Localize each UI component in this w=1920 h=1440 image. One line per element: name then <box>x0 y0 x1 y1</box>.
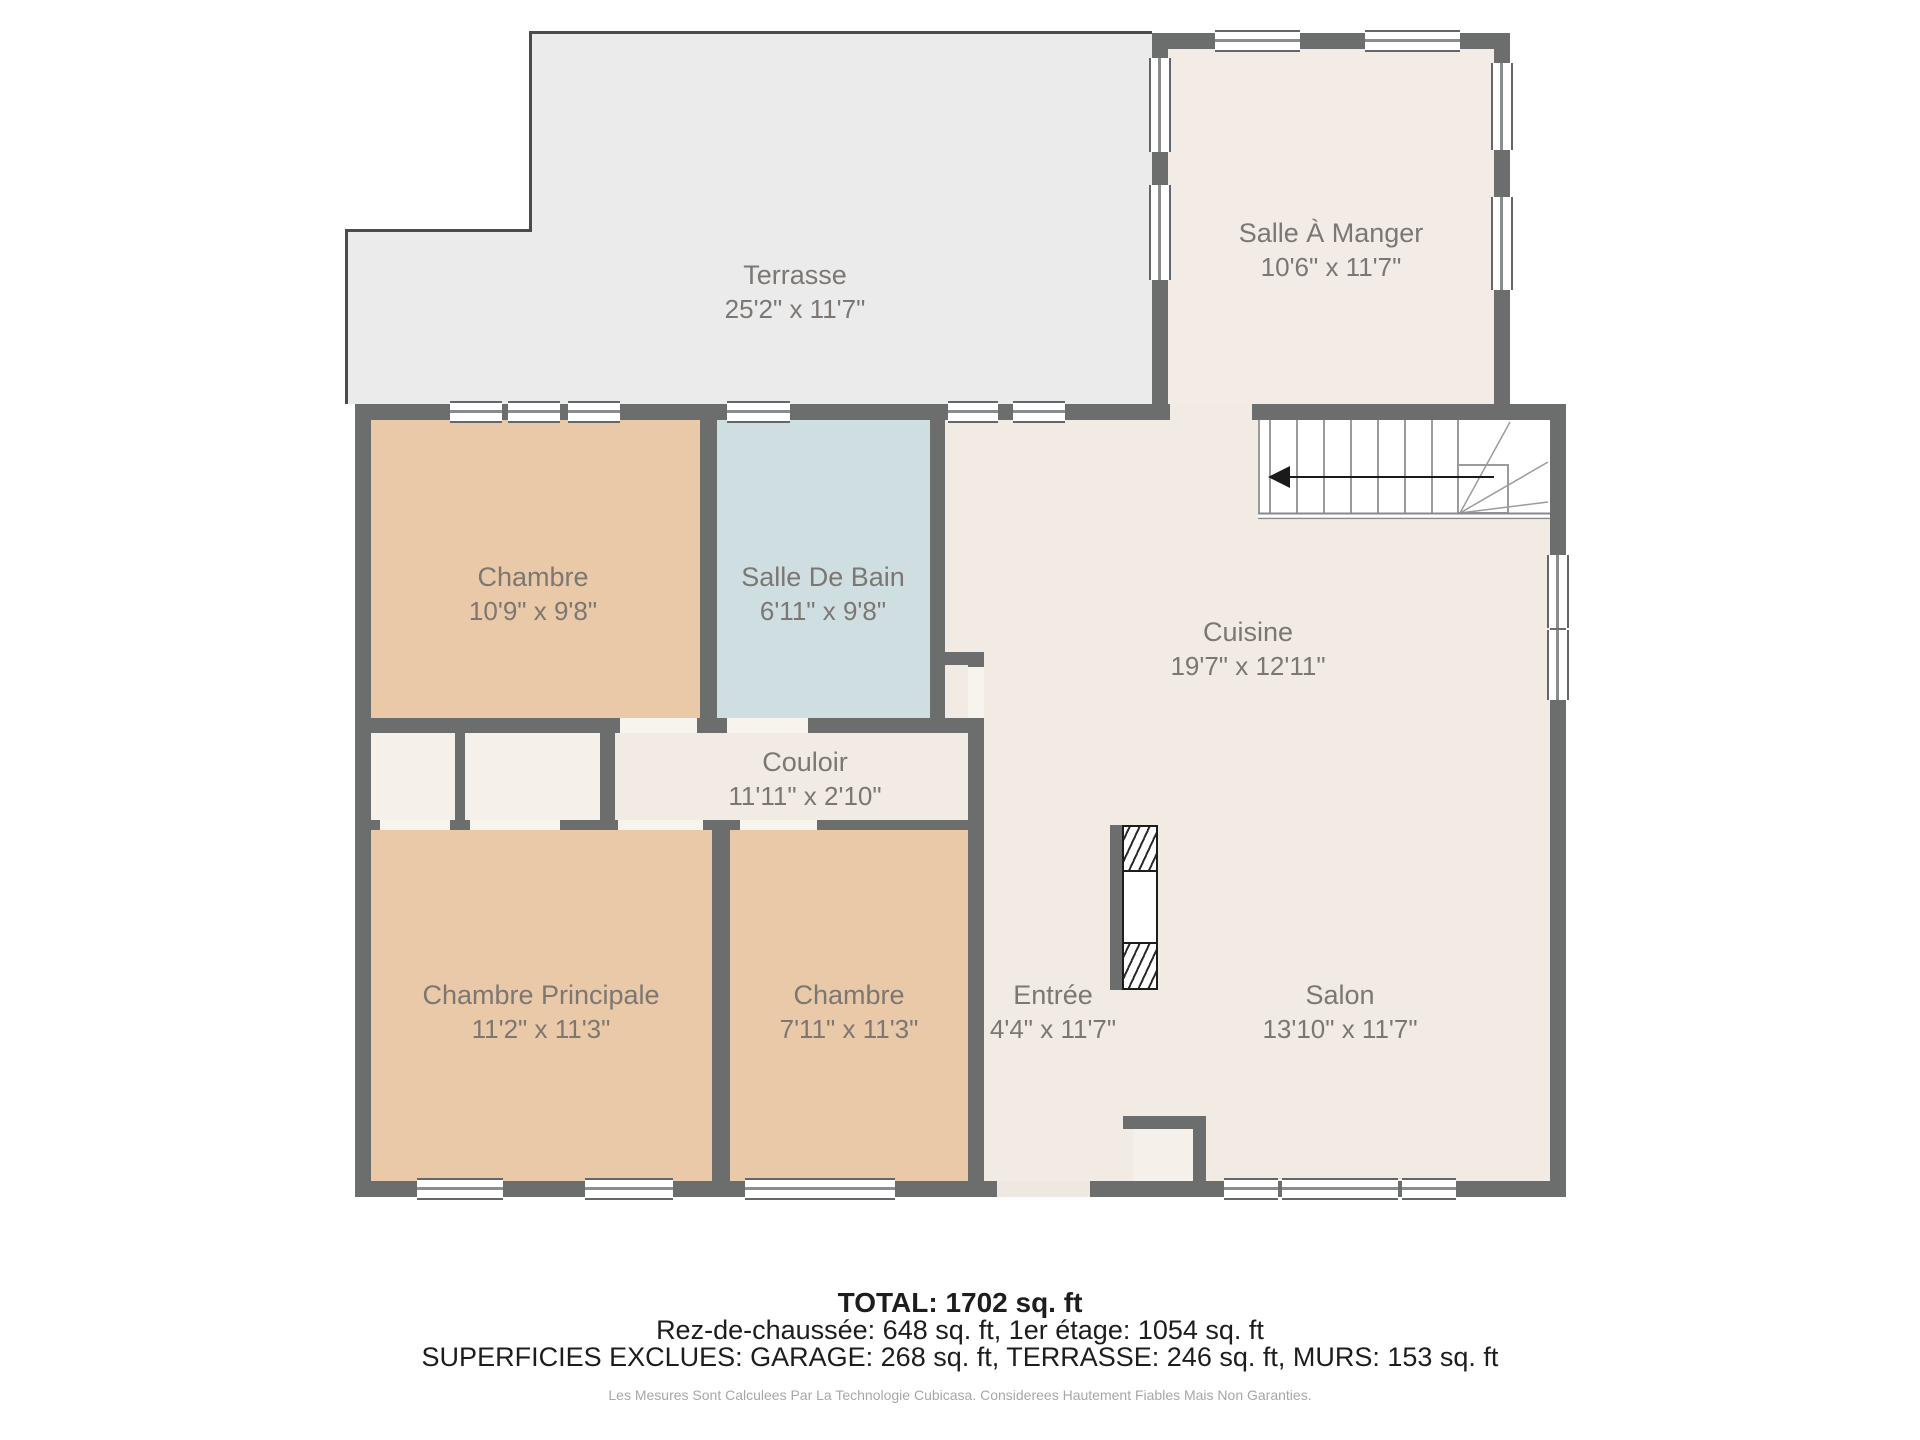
label-terrasse: Terrasse 25'2" x 11'7" <box>725 258 866 326</box>
total-area: TOTAL: 1702 sq. ft <box>0 1288 1920 1317</box>
label-couloir: Couloir 11'11" x 2'10" <box>728 745 881 813</box>
window <box>1282 1178 1398 1200</box>
room-name: Chambre <box>469 560 597 594</box>
window <box>417 1178 503 1200</box>
window <box>1149 185 1171 280</box>
chimney-flue <box>1122 825 1158 872</box>
door-opening <box>727 718 808 733</box>
room-dims: 6'11" x 9'8" <box>741 594 905 628</box>
area-summary: TOTAL: 1702 sq. ft Rez-de-chaussée: 648 … <box>0 1288 1920 1403</box>
wall <box>560 820 618 830</box>
label-salle-a-manger: Salle À Manger 10'6" x 11'7" <box>1239 216 1424 284</box>
room-name: Chambre Principale <box>422 978 659 1012</box>
door-opening <box>1170 404 1252 420</box>
room-name: Chambre <box>780 978 919 1012</box>
chimney <box>1110 825 1158 990</box>
terrace-railing <box>529 31 1152 34</box>
wall <box>600 733 615 820</box>
wall <box>1193 1116 1206 1181</box>
wall-left <box>355 404 371 1197</box>
window <box>1547 630 1569 700</box>
label-cuisine: Cuisine 19'7" x 12'11" <box>1170 615 1325 683</box>
window <box>450 401 502 423</box>
disclaimer: Les Mesures Sont Calculees Par La Techno… <box>0 1387 1920 1403</box>
room-terrasse-floor <box>345 229 529 404</box>
label-entree: Entrée 4'4" x 11'7" <box>990 978 1116 1046</box>
entry-closet-floor <box>1133 1129 1193 1181</box>
wall <box>808 718 968 733</box>
wall <box>371 820 380 830</box>
door-opening <box>380 820 450 830</box>
window <box>745 1178 895 1200</box>
room-name: Salon <box>1262 978 1417 1012</box>
wall <box>703 820 740 830</box>
wall <box>371 718 620 733</box>
window <box>1402 1178 1456 1200</box>
room-name: Salle De Bain <box>741 560 905 594</box>
room-dims: 25'2" x 11'7" <box>725 292 866 326</box>
room-dims: 11'2" x 11'3" <box>422 1012 659 1046</box>
window <box>1491 63 1513 150</box>
room-dims: 11'11" x 2'10" <box>728 779 881 813</box>
wall-right <box>1550 404 1566 1197</box>
label-salle-de-bain: Salle De Bain 6'11" x 9'8" <box>741 560 905 628</box>
floor-areas: Rez-de-chaussée: 648 sq. ft, 1er étage: … <box>0 1317 1920 1344</box>
room-name: Couloir <box>728 745 881 779</box>
door-opening <box>620 718 697 733</box>
room-terrasse-floor <box>529 31 1152 404</box>
wall <box>930 420 945 733</box>
chimney-flue <box>1122 870 1158 944</box>
room-name: Terrasse <box>725 258 866 292</box>
window <box>1215 30 1300 52</box>
door-opening <box>968 667 984 718</box>
window <box>1149 58 1171 152</box>
wall <box>700 420 717 733</box>
room-name: Salle À Manger <box>1239 216 1424 250</box>
room-dims: 7'11" x 11'3" <box>780 1012 919 1046</box>
chimney-wall <box>1110 825 1122 990</box>
room-dims: 13'10" x 11'7" <box>1262 1012 1417 1046</box>
floor-plan: Terrasse 25'2" x 11'7" Salle À Manger 10… <box>0 0 1920 1440</box>
wall <box>455 733 465 820</box>
stairs <box>1258 420 1550 520</box>
door-opening <box>470 820 560 830</box>
label-chambre-bas: Chambre 7'11" x 11'3" <box>780 978 919 1046</box>
room-dims: 19'7" x 12'11" <box>1170 649 1325 683</box>
door-opening <box>740 820 817 830</box>
wall <box>968 652 984 667</box>
window <box>1365 30 1460 52</box>
wall <box>712 830 730 1181</box>
terrace-railing <box>345 229 532 232</box>
label-salon: Salon 13'10" x 11'7" <box>1262 978 1417 1046</box>
chimney-flue <box>1122 942 1158 990</box>
excluded-areas: SUPERFICIES EXCLUES: GARAGE: 268 sq. ft,… <box>0 1344 1920 1371</box>
window <box>508 401 560 423</box>
room-name: Cuisine <box>1170 615 1325 649</box>
terrace-railing <box>529 31 532 232</box>
window <box>727 401 790 423</box>
wall <box>968 718 984 1181</box>
terrace-railing <box>345 229 348 404</box>
room-dims: 4'4" x 11'7" <box>990 1012 1116 1046</box>
window <box>1224 1178 1278 1200</box>
wall <box>450 820 470 830</box>
window <box>948 401 998 423</box>
label-chambre-haut: Chambre 10'9" x 9'8" <box>469 560 597 628</box>
room-name: Entrée <box>990 978 1116 1012</box>
window <box>585 1178 673 1200</box>
closet-floor <box>465 733 600 820</box>
wall <box>817 820 984 830</box>
window <box>568 401 620 423</box>
label-chambre-principale: Chambre Principale 11'2" x 11'3" <box>422 978 659 1046</box>
wall <box>697 718 727 733</box>
closet-floor <box>371 733 455 820</box>
window <box>1547 555 1569 628</box>
window <box>1013 401 1065 423</box>
window <box>1491 197 1513 290</box>
door-opening <box>618 820 703 830</box>
door-opening-front <box>997 1181 1090 1197</box>
room-dims: 10'9" x 9'8" <box>469 594 597 628</box>
room-dims: 10'6" x 11'7" <box>1239 250 1424 284</box>
